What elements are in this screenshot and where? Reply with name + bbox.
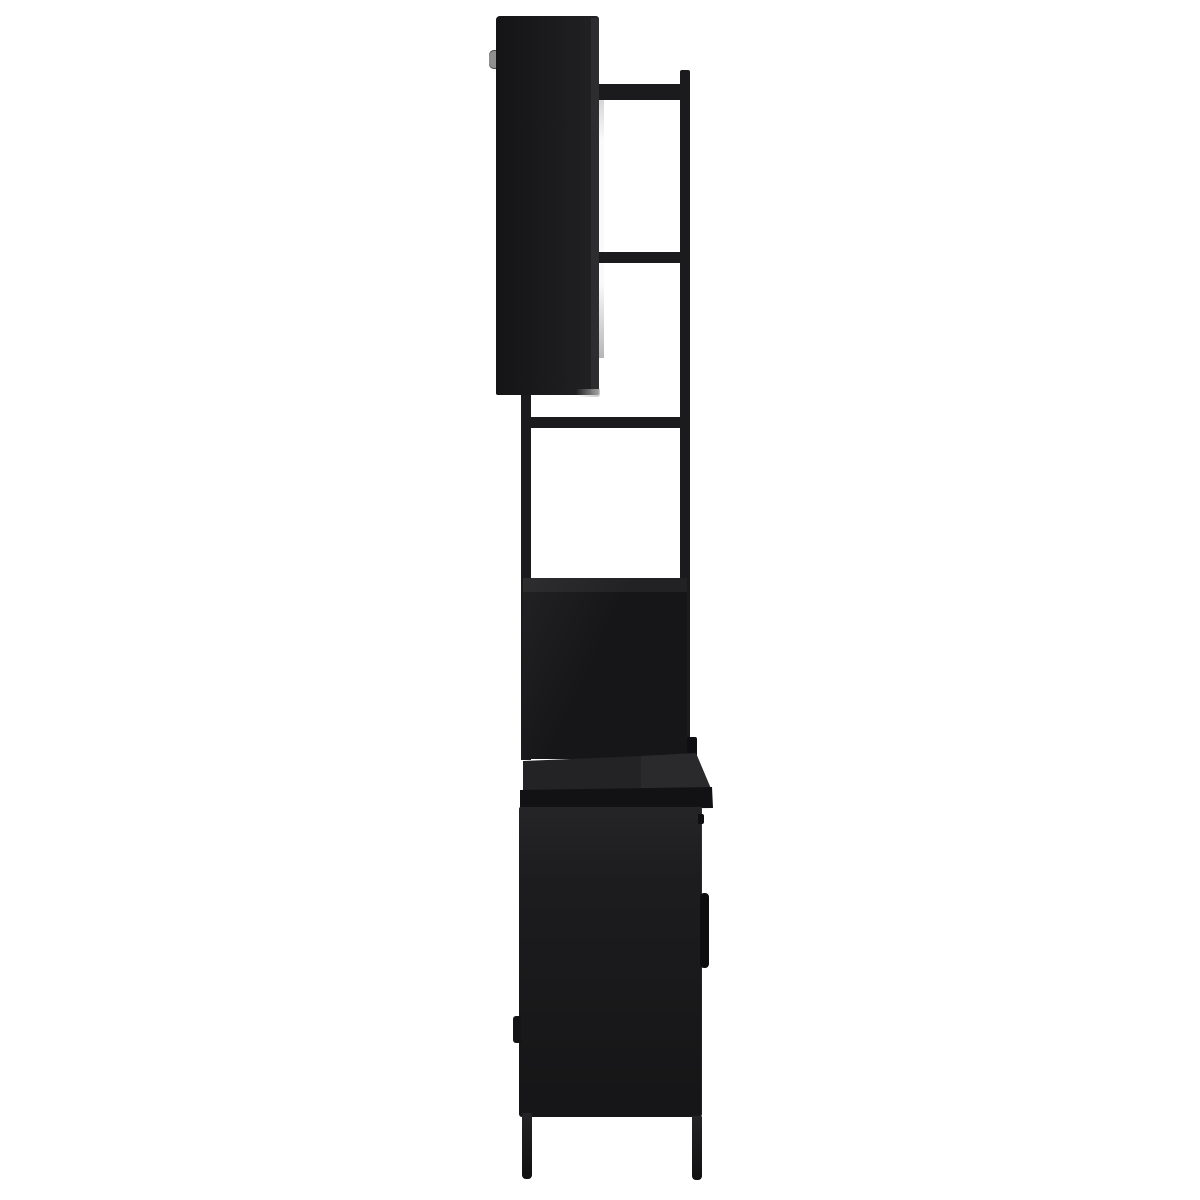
frame-shelf-bar-top	[599, 84, 690, 100]
product-image	[0, 0, 1200, 1200]
countertop	[520, 753, 713, 811]
leg-right	[692, 1116, 702, 1180]
wall-cabinet-front-edge	[591, 18, 599, 393]
frame-shelf-bar-lower	[521, 417, 689, 428]
wall-cabinet-bottom-glint	[576, 389, 600, 397]
middle-panel-shading	[523, 578, 687, 759]
middle-back-panel	[523, 578, 687, 759]
leg-left-shading	[522, 1113, 532, 1179]
wall-cabinet-panel	[496, 16, 599, 395]
base-cabinet-right-fitting	[698, 814, 704, 824]
frame-shelf-bar-middle	[599, 252, 688, 263]
leg-left	[522, 1113, 532, 1179]
wall-cabinet-shading	[496, 16, 599, 395]
leg-right-shading	[692, 1116, 702, 1180]
base-cabinet-body	[519, 807, 702, 1117]
base-cabinet-hinge	[513, 1016, 521, 1043]
door-handle	[700, 893, 709, 968]
base-cabinet-shading	[519, 807, 702, 1117]
